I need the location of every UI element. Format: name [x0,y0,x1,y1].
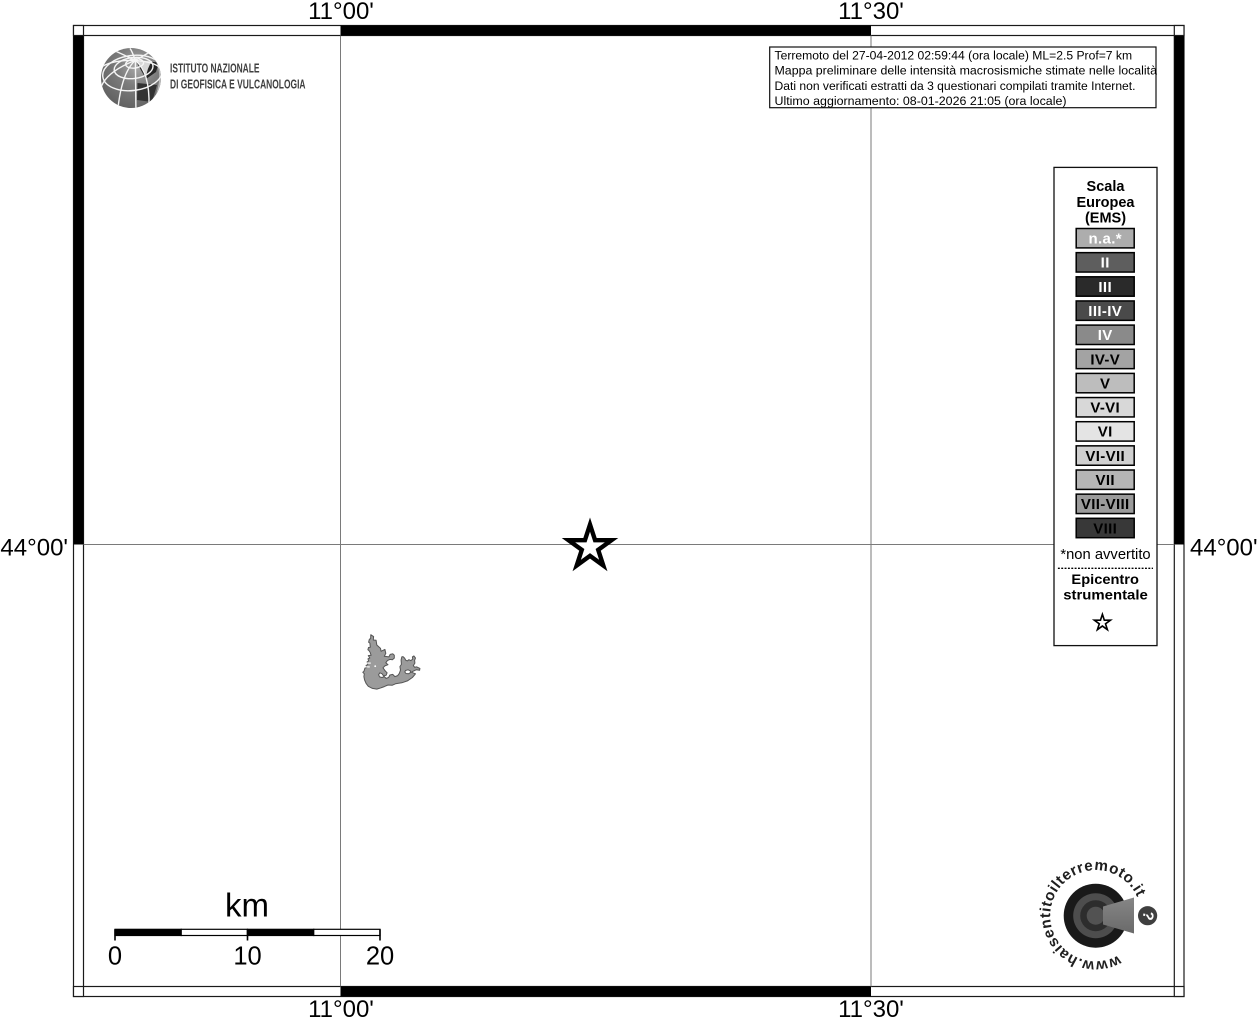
svg-text:IV: IV [1098,327,1113,344]
svg-text:Terremoto del 27-04-2012 02:59: Terremoto del 27-04-2012 02:59:44 (ora l… [775,48,1133,62]
svg-text:V: V [1100,375,1110,392]
svg-text:IV-V: IV-V [1090,351,1120,368]
svg-text:ISTITUTO NAZIONALE: ISTITUTO NAZIONALE [170,61,260,76]
svg-text:*non avvertito: *non avvertito [1060,547,1150,563]
svg-text:10: 10 [233,943,261,971]
svg-text:VII-VIII: VII-VIII [1081,496,1130,513]
svg-text:V-VI: V-VI [1090,400,1120,417]
svg-text:44°00': 44°00' [1190,535,1257,562]
svg-text:III: III [1098,279,1112,296]
svg-text:11°30': 11°30' [838,0,904,25]
svg-text:Mappa preliminare delle intens: Mappa preliminare delle intensità macros… [775,64,1158,78]
svg-text:III-IV: III-IV [1088,303,1122,320]
svg-text:Europea: Europea [1076,195,1135,211]
svg-text:DI GEOFISICA E VULCANOLOGIA: DI GEOFISICA E VULCANOLOGIA [170,76,306,91]
svg-text:VIII: VIII [1093,520,1117,537]
svg-text:n.a.*: n.a.* [1088,231,1121,248]
svg-text:VII: VII [1096,472,1115,489]
svg-text:11°00': 11°00' [308,0,374,25]
svg-text:Scala: Scala [1087,179,1126,195]
svg-text:strumentale: strumentale [1063,588,1148,604]
svg-text:VI-VII: VI-VII [1085,448,1125,465]
svg-text:(EMS): (EMS) [1085,211,1126,227]
svg-text:km: km [225,887,269,924]
svg-text:11°30': 11°30' [838,996,904,1023]
svg-text:II: II [1101,255,1110,272]
svg-text:11°00': 11°00' [308,996,374,1023]
svg-text:Dati non verificati estratti d: Dati non verificati estratti da 3 questi… [775,79,1136,93]
svg-text:Epicentro: Epicentro [1071,572,1139,588]
svg-text:0: 0 [108,943,122,971]
svg-text:20: 20 [366,943,394,971]
svg-text:VI: VI [1098,424,1113,441]
svg-text:Ultimo aggiornamento: 08-01-20: Ultimo aggiornamento: 08-01-2026 21:05 (… [775,94,1067,108]
svg-text:44°00': 44°00' [0,535,68,562]
